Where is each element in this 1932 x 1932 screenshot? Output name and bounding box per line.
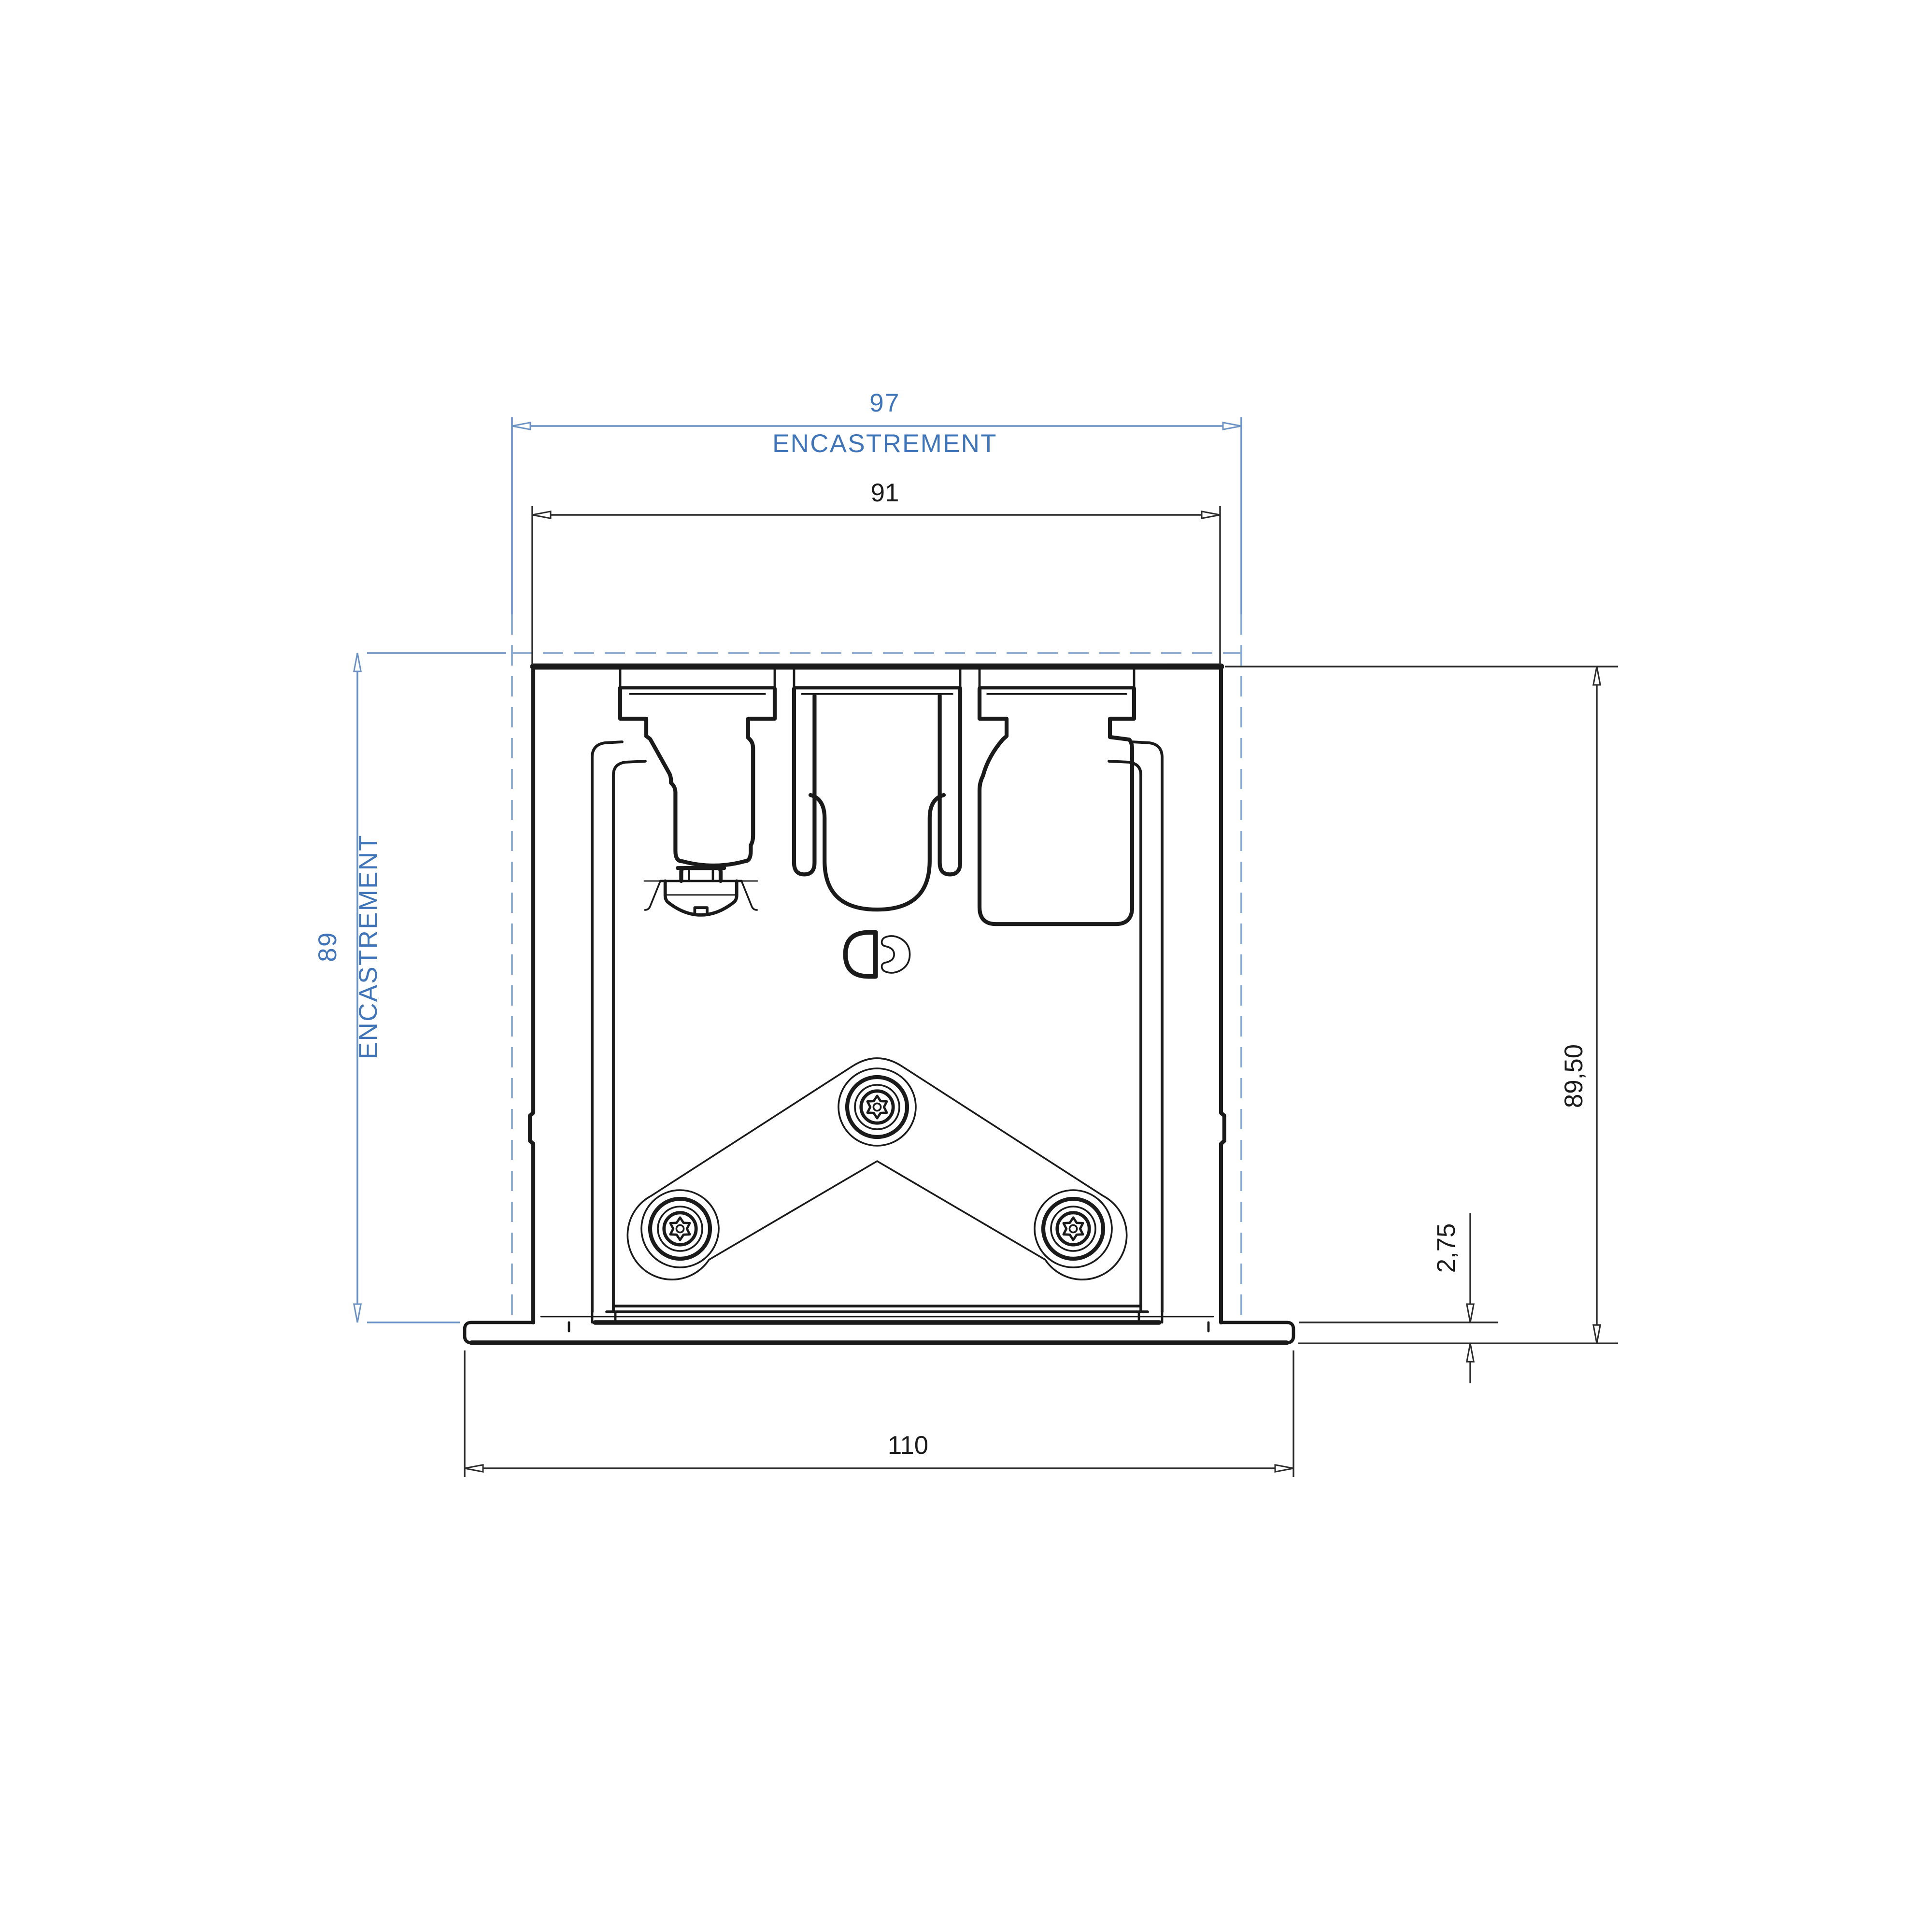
crown-right-block [980, 689, 1134, 924]
housing-right-wall [1221, 668, 1224, 1322]
dim-97-arrow-left [512, 423, 530, 429]
dim-89-arrow-top [354, 653, 361, 671]
dim-97-label: ENCASTREMENT [772, 429, 997, 458]
dim-97-value: 97 [869, 389, 900, 417]
dim-flange-offset: 2,75 [1299, 1213, 1498, 1383]
dim-275-arrow-down [1467, 1304, 1474, 1322]
crown-risers [620, 667, 1134, 688]
crown-hat-left-skirt [794, 689, 814, 874]
dim-8950-arrow-top [1593, 667, 1600, 685]
dim-110-arrow-right [1275, 1465, 1293, 1472]
dim-110-extension-lines [465, 1350, 1293, 1477]
dim-8950-value: 89,50 [1560, 1044, 1588, 1108]
dim-body-width: 91 [532, 479, 1220, 665]
dim-275-value: 2,75 [1432, 1223, 1461, 1273]
dim-8950-arrow-bottom [1593, 1325, 1600, 1343]
profile-cross-section [465, 667, 1293, 1343]
dim-91-arrow-right [1202, 511, 1220, 518]
torx-screw-left [641, 1190, 719, 1267]
keyhole-d-shape [845, 932, 875, 976]
dim-89-arrow-bottom [354, 1304, 361, 1322]
dim-97-arrow-right [1223, 423, 1241, 429]
dim-91-extension-lines [532, 506, 1220, 665]
dim-flange-width: 110 [465, 1350, 1293, 1477]
torx-screw-center [838, 1068, 916, 1146]
dim-275-arrow-up [1467, 1343, 1474, 1362]
liner-left-inner [613, 761, 645, 1312]
center-finger [810, 795, 944, 909]
crown-left-tooth [620, 688, 775, 866]
clamp-nut-outline [681, 868, 721, 881]
dim-89-extension-lines [367, 653, 506, 1322]
dim-8950-extension-lines [1225, 667, 1618, 1343]
dim-89-value: 89 [313, 931, 342, 962]
dim-91-arrow-left [532, 511, 551, 518]
trim-flange [465, 1322, 1293, 1343]
screw-head-notch [695, 908, 707, 913]
crown-hat-right-skirt [940, 689, 960, 874]
dim-recess-depth: 89 ENCASTREMENT [313, 653, 506, 1322]
liner-right-inner [1109, 761, 1141, 1312]
recessed-profile-cross-section: 97 ENCASTREMENT 91 89 ENCASTREMENT 89,50… [0, 0, 1932, 1932]
dim-91-value: 91 [871, 479, 899, 507]
clamp-nut-inner [689, 870, 713, 881]
dim-89-label: ENCASTREMENT [354, 834, 383, 1059]
dim-110-value: 110 [888, 1431, 928, 1460]
screw-head-body [665, 881, 737, 915]
dim-110-arrow-left [465, 1465, 483, 1472]
keyhole-crescent [882, 936, 910, 973]
liner-left-outer [592, 742, 622, 1312]
drawing-sheet: 97 ENCASTREMENT 91 89 ENCASTREMENT 89,50… [0, 0, 1932, 1932]
dim-overall-height: 89,50 [1225, 667, 1618, 1343]
housing-left-wall [530, 668, 533, 1322]
clamp-screw-assembly [644, 868, 757, 915]
torx-screw-right [1035, 1190, 1112, 1267]
liner-right-outer [1132, 742, 1162, 1312]
